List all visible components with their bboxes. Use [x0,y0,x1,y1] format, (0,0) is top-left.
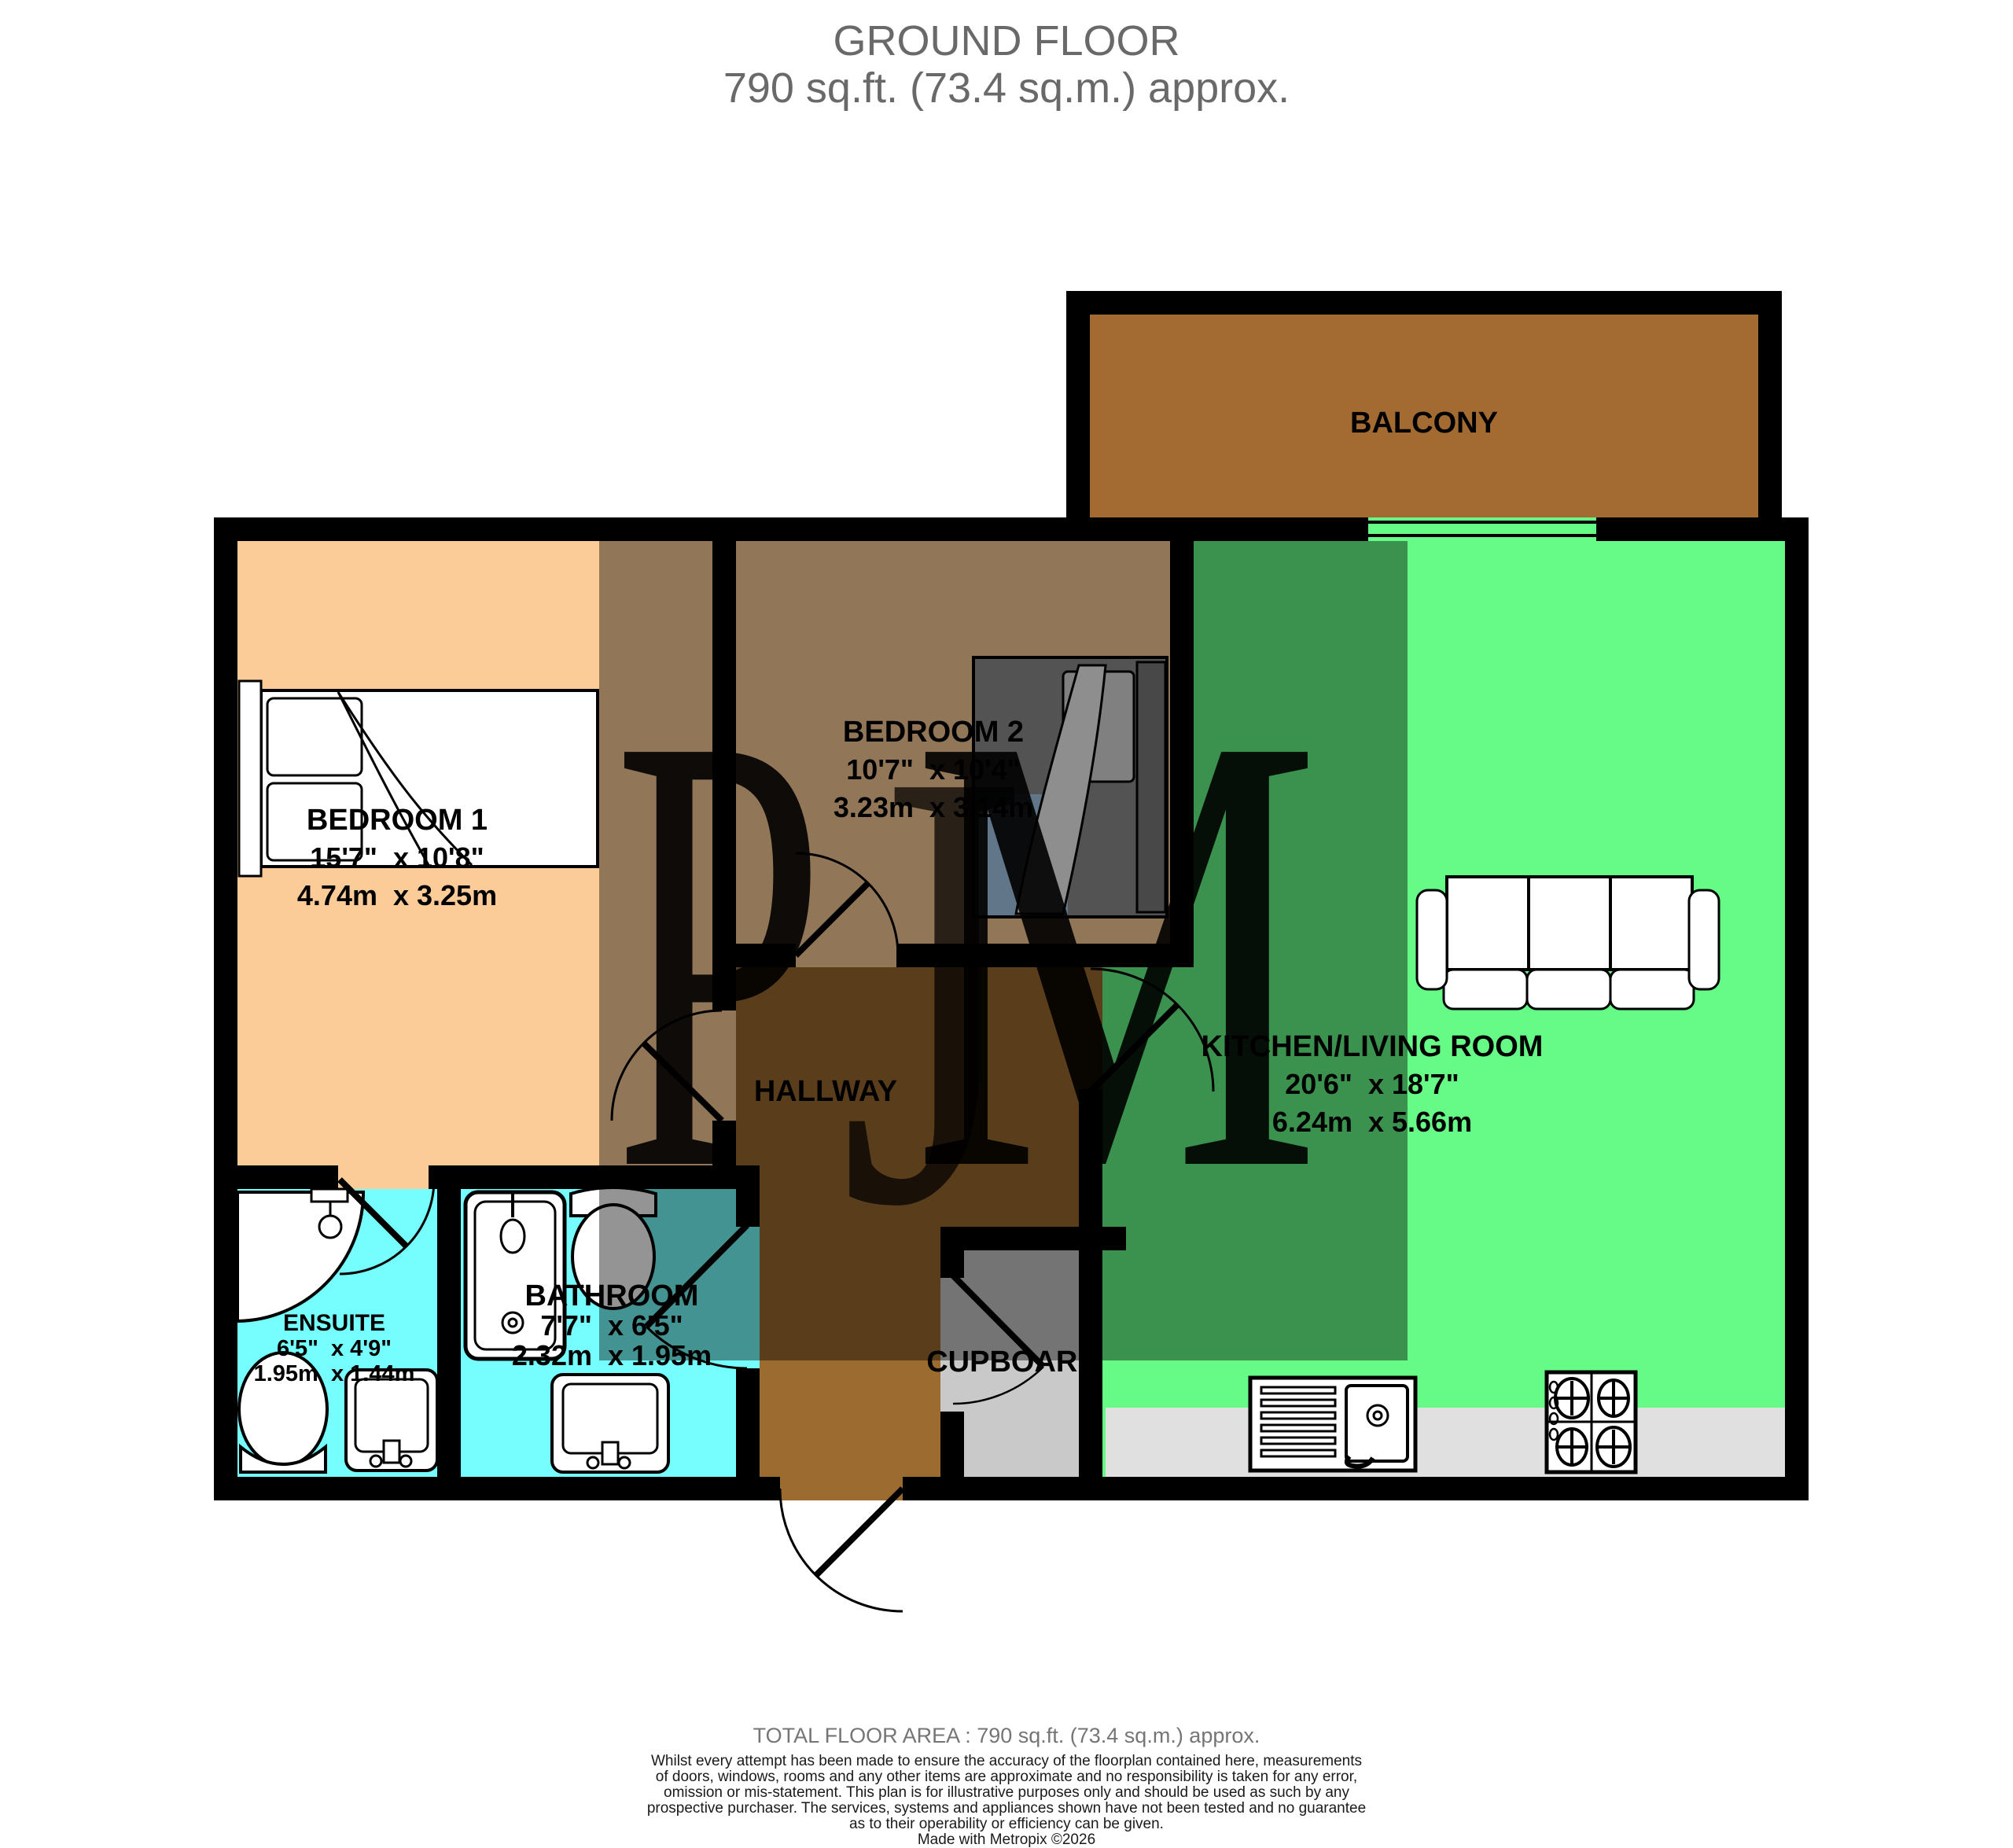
ensuite-dim-metric: 1.95m x 1.44m [254,1361,415,1386]
wall-bathroom-hall-lower [736,1368,760,1477]
entry-door [780,1489,903,1611]
wall-bathroom-top [429,1165,760,1189]
kitchen-hob [1547,1372,1636,1472]
bed1-headboard [239,681,261,876]
sofa-seat-2 [1527,970,1610,1009]
wall-bottom-left-of-entry [214,1477,780,1500]
wall-hall-kitchen [1079,1089,1102,1227]
wall-bed2-bottom-left [712,944,796,967]
bedroom1-label: BEDROOM 1 [307,804,488,837]
disclaimer-line: Whilst every attempt has been made to en… [0,1754,2013,1769]
total-floor-area: TOTAL FLOOR AREA : 790 sq.ft. (73.4 sq.m… [0,1724,2013,1748]
balcony-window [1368,517,1596,541]
shower-head-icon [319,1216,341,1238]
disclaimer-line: omission or mis-statement. This plan is … [0,1785,2013,1801]
kitchen-living-label: KITCHEN/LIVING ROOM [1202,1030,1544,1063]
ensuite-sink-faucet [384,1441,399,1463]
cupboard-label: CUPBOARD [926,1346,1099,1379]
metropix-credit: Made with Metropix ©2026 [0,1832,2013,1848]
wall-bed2-bottom-right [896,944,1194,967]
bedroom2-dim-imperial: 10'7" x 10'4" [846,753,1020,786]
bedroom2-dim-metric: 3.23m x 3.14m [834,791,1033,823]
bathroom-sink-faucet [602,1442,618,1464]
ensuite-dim-imperial: 6'5" x 4'9" [277,1336,392,1361]
wall-left [214,517,237,1500]
balcony-wall-top [1066,291,1782,315]
kitchen-sink-unit [1250,1378,1415,1471]
sofa-seat-3 [1610,970,1694,1009]
wall-bed2-kitchen [1170,541,1194,944]
wall-cupboard-left-upper [940,1227,964,1278]
floorplan-canvas: P J M [0,0,2013,1846]
bathroom-dim-imperial: 7'7" x 6'5" [540,1309,683,1342]
balcony-label: BALCONY [1350,407,1498,440]
wall-ensuite-bathroom [437,1189,461,1477]
wall-bed1-hall-stub [712,1121,736,1165]
kitchen-living-dim-metric: 6.24m x 5.66m [1272,1106,1472,1138]
bath-shower-head [501,1220,524,1253]
sofa-seat-1 [1444,970,1527,1009]
disclaimer-line: as to their operability or efficiency ca… [0,1817,2013,1832]
wall-cupboard-left-lower [940,1412,964,1477]
sink-basin [1346,1386,1408,1461]
wall-ensuite-top [214,1165,338,1189]
disclaimer-line: of doors, windows, rooms and any other i… [0,1769,2013,1785]
ensuite-label: ENSUITE [283,1310,385,1336]
sofa-back-cushion-3 [1610,877,1692,970]
sofa-back-cushion-1 [1447,877,1529,970]
kitchen-living-dim-imperial: 20'6" x 18'7" [1285,1068,1459,1100]
wall-bed1-bed2-upper [712,541,736,1011]
balcony-wall-left [1066,291,1090,541]
hallway-label: HALLWAY [754,1075,897,1108]
bedroom1-dim-imperial: 15'7" x 10'8" [310,841,484,874]
wall-bathroom-hall-upper [736,1165,760,1227]
kitchen-counter [1106,1408,1785,1477]
balcony-wall-right [1758,291,1782,541]
sofa-back-cushion-2 [1529,877,1610,970]
wall-right [1785,517,1809,1500]
sofa-armrest-left [1417,890,1447,989]
wall-bottom-right-of-entry [903,1477,1809,1500]
bathroom-sink-vanity [552,1375,668,1472]
disclaimer-line: prospective purchaser. The services, sys… [0,1801,2013,1817]
shower-mixer [311,1189,348,1202]
bedroom1-dim-metric: 4.74m x 3.25m [297,879,497,911]
bedroom2-label: BEDROOM 2 [843,716,1024,749]
sofa [1417,877,1719,1009]
disclaimer: Whilst every attempt has been made to en… [0,1754,2013,1848]
bathroom-dim-metric: 2.32m x 1.95m [512,1339,712,1371]
bathroom-label: BATHROOM [525,1279,699,1312]
sofa-armrest-right [1689,890,1719,989]
